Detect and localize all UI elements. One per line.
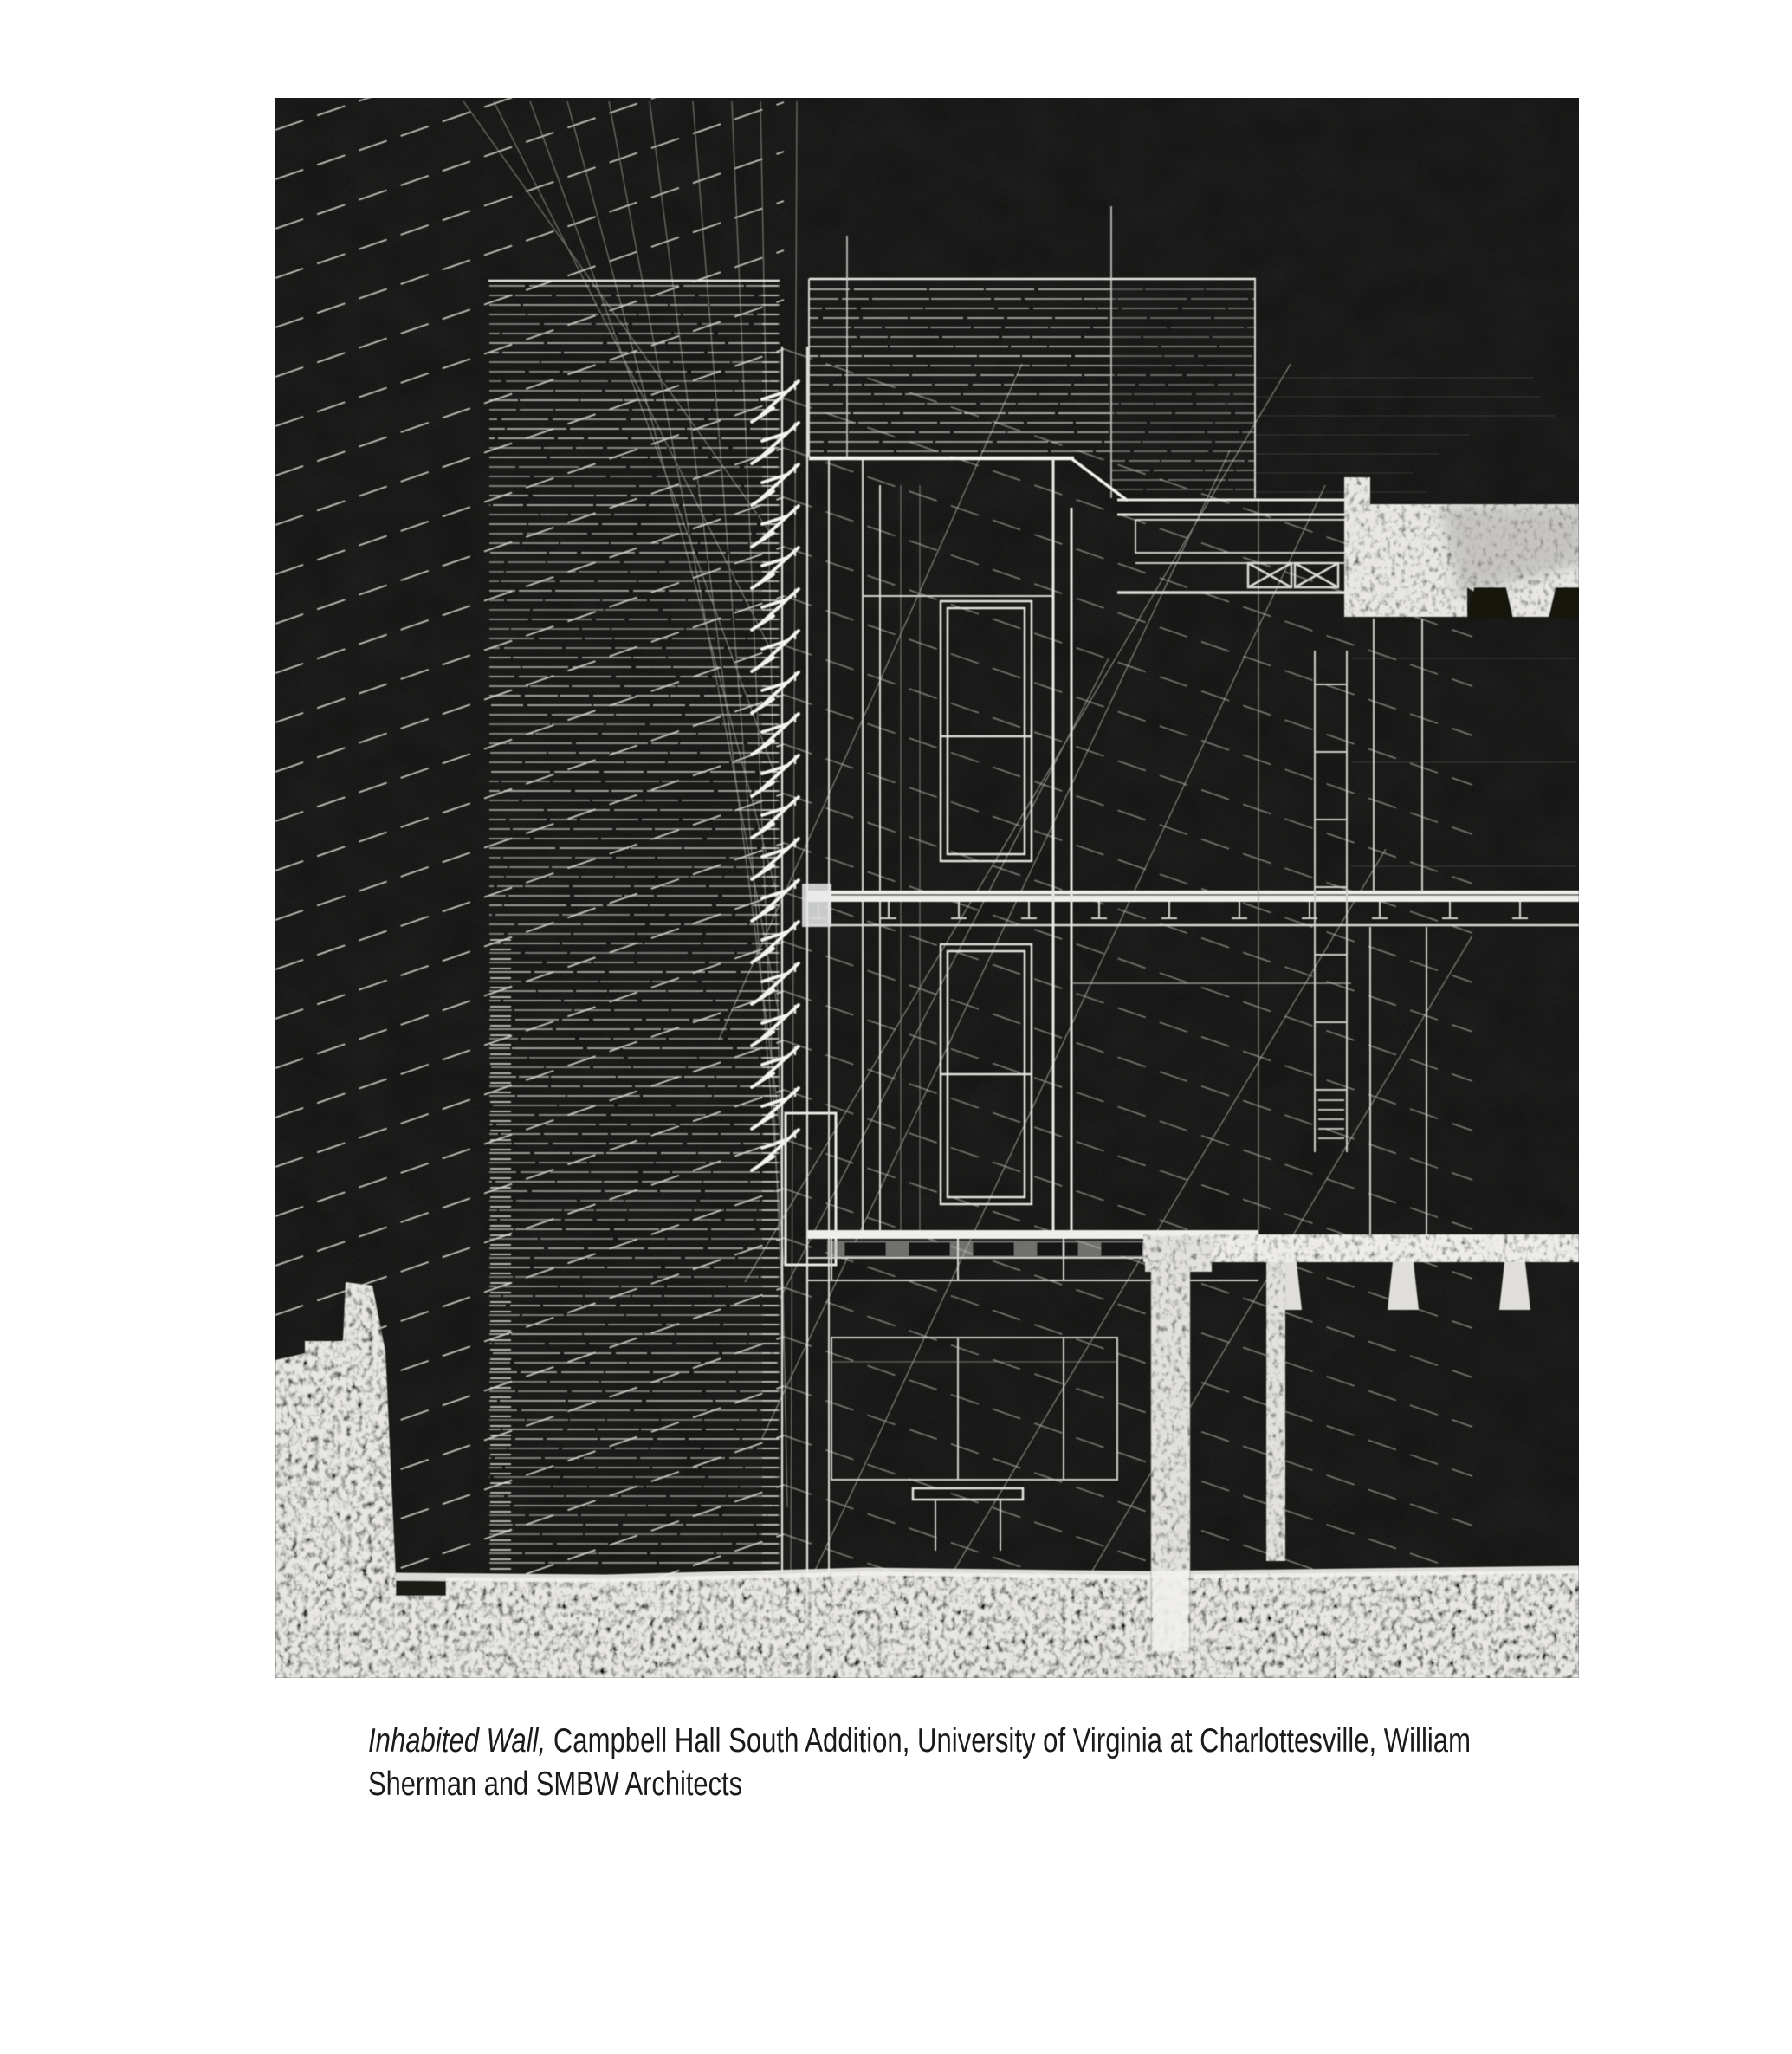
svg-text:Inhabited Wall, Campbell Hall: Inhabited Wall, Campbell Hall South Addi… xyxy=(368,1722,1471,1759)
svg-text:Sherman and SMBW Architects: Sherman and SMBW Architects xyxy=(368,1766,742,1803)
